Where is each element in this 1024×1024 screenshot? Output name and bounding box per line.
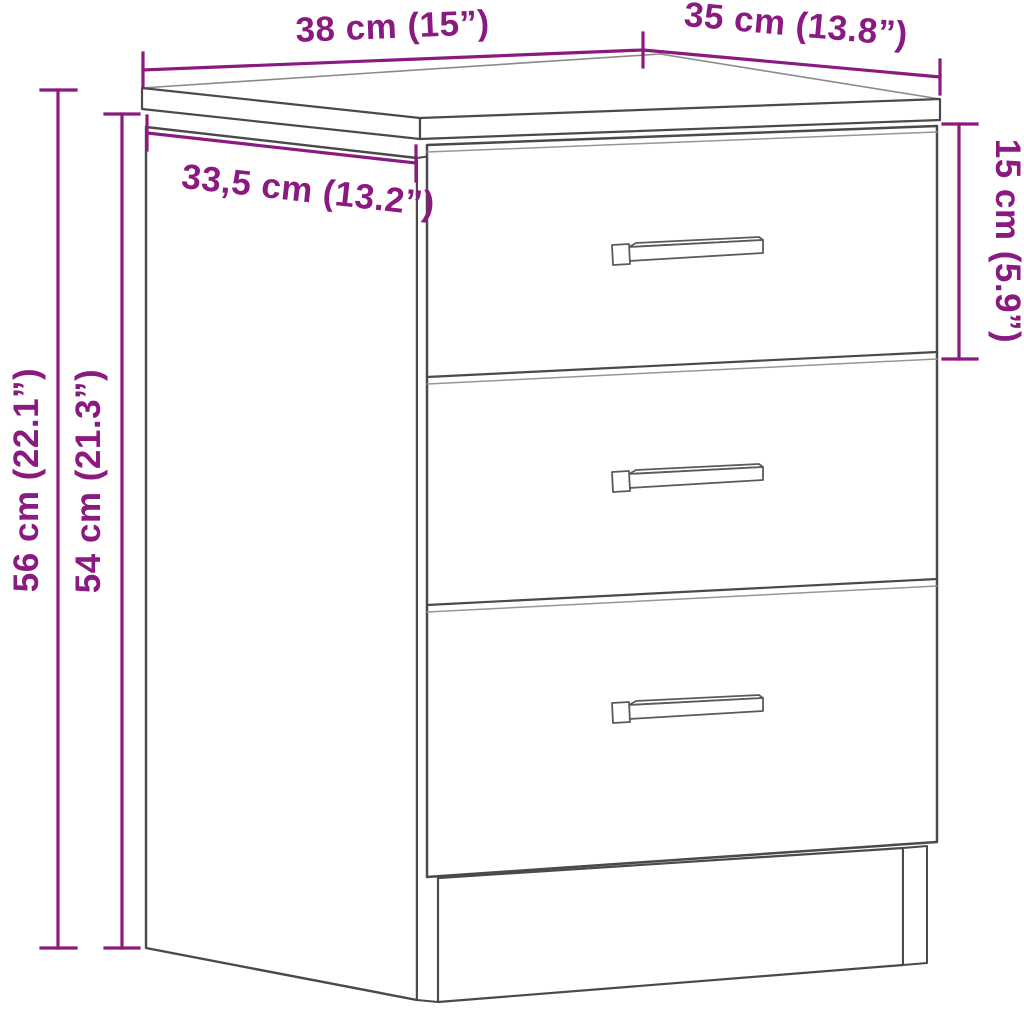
dimension-diagram: 38 cm (15”) 35 cm (13.8”) 33,5 cm (13.2”… [0,0,1024,1024]
drawer-front-block [427,126,937,877]
label-drawer-height: 15 cm (5.9”) [988,139,1024,343]
handle-end-cap [612,244,630,265]
right-leg [903,846,927,965]
handle-end-cap [612,471,630,492]
diagram-canvas: 38 cm (15”) 35 cm (13.8”) 33,5 cm (13.2”… [0,0,1024,1024]
label-body-height: 54 cm (21.3”) [69,369,108,593]
label-top-width: 38 cm (15”) [295,3,491,50]
handle-end-cap [612,702,630,723]
dimension-body-height [105,114,139,948]
dimension-drawer-height [943,124,977,359]
side-panel [146,127,417,1000]
label-top-depth: 35 cm (13.8”) [683,0,910,54]
label-total-height: 56 cm (22.1”) [7,368,46,592]
